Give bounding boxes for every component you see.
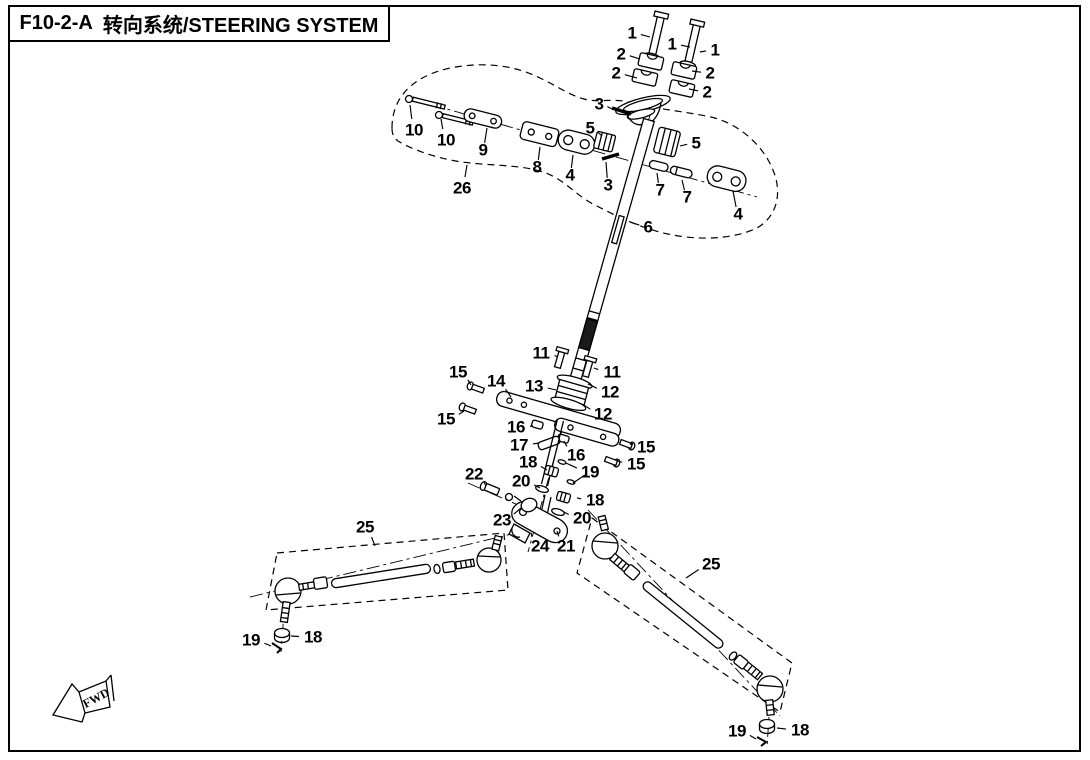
- bolt-15-a: [466, 381, 485, 394]
- part-callout-23: 23: [493, 512, 511, 529]
- part-callout-25: 25: [356, 519, 374, 536]
- spacer-16-a: [531, 420, 544, 430]
- part-callout-4: 4: [566, 167, 575, 184]
- part-callout-18: 18: [586, 492, 604, 509]
- part-callout-10: 10: [405, 122, 423, 139]
- part-callout-18: 18: [519, 454, 537, 471]
- part-callout-8: 8: [533, 159, 542, 176]
- part-callout-18: 18: [304, 629, 322, 646]
- part-callout-21: 21: [557, 538, 575, 555]
- spline-end: [579, 319, 598, 351]
- part-callout-20: 20: [512, 473, 530, 490]
- washer-19-a: [558, 459, 567, 465]
- part-callout-26: 26: [453, 180, 471, 197]
- part-callout-13: 13: [525, 378, 543, 395]
- nut-18-left: [275, 629, 290, 643]
- part-callout-15: 15: [627, 456, 645, 473]
- part-callout-2: 2: [703, 84, 712, 101]
- part-callout-22: 22: [465, 466, 483, 483]
- pin-7-a: [649, 160, 669, 172]
- part-callout-15: 15: [437, 411, 455, 428]
- part-callout-2: 2: [706, 65, 715, 82]
- screw-10-a: [406, 96, 446, 111]
- nut-18-right: [760, 720, 775, 734]
- part-callout-12: 12: [601, 384, 619, 401]
- roll-pin-lower: [602, 154, 619, 159]
- damper-right-5: [653, 127, 681, 158]
- clamp-bolt-right: [679, 19, 705, 69]
- part-callout-9: 9: [479, 142, 488, 159]
- pin-7-b: [670, 165, 693, 178]
- part-callout-12: 12: [594, 406, 612, 423]
- part-callout-3: 3: [604, 177, 613, 194]
- part-callout-19: 19: [728, 723, 746, 740]
- tie-rod-left: [275, 535, 502, 622]
- cotter-pin-19-right: [757, 737, 766, 746]
- part-callout-5: 5: [586, 120, 595, 137]
- part-callout-15: 15: [637, 439, 655, 456]
- part-callout-10: 10: [437, 132, 455, 149]
- bushing-18-a: [544, 465, 559, 477]
- part-callout-1: 1: [711, 42, 720, 59]
- part-callout-19: 19: [242, 632, 260, 649]
- part-callout-11: 11: [604, 364, 621, 381]
- bushing-18-b: [556, 491, 571, 503]
- clamp-block-8: [519, 121, 559, 147]
- part-callout-24: 24: [531, 538, 549, 555]
- part-callout-16: 16: [507, 419, 525, 436]
- cotter-pin-19-left: [272, 643, 281, 653]
- part-callout-7: 7: [683, 189, 692, 206]
- part-callout-1: 1: [668, 36, 677, 53]
- parts-diagram-page: F10-2-A 转向系统/STEERING SYSTEM: [0, 0, 1090, 760]
- steering-column-shaft: [565, 119, 655, 401]
- damper-left-5: [593, 131, 616, 152]
- part-callout-15: 15: [449, 364, 467, 381]
- link-plate-9: [463, 108, 503, 130]
- part-callout-14: 14: [487, 373, 505, 390]
- part-callout-11: 11: [533, 345, 550, 362]
- part-callout-20: 20: [573, 510, 591, 527]
- part-callout-1: 1: [628, 25, 637, 42]
- part-callout-2: 2: [617, 46, 626, 63]
- fwd-arrow: FWD: [53, 675, 114, 722]
- part-callout-19: 19: [581, 464, 599, 481]
- part-callout-16: 16: [567, 447, 585, 464]
- part-callout-4: 4: [734, 206, 743, 223]
- bearing-bolt-11-a: [552, 347, 569, 370]
- u-joint-right-4: [705, 164, 748, 194]
- washer-22: [506, 494, 513, 501]
- part-callout-2: 2: [612, 65, 621, 82]
- exploded-view-artwork: FWD: [0, 0, 1090, 760]
- part-callout-5: 5: [692, 135, 701, 152]
- part-callout-18: 18: [791, 722, 809, 739]
- part-callout-6: 6: [644, 219, 653, 236]
- part-callout-17: 17: [510, 437, 528, 454]
- part-callout-25: 25: [702, 556, 720, 573]
- part-callout-3: 3: [595, 96, 604, 113]
- bolt-15-c: [619, 438, 636, 451]
- part-callout-7: 7: [656, 182, 665, 199]
